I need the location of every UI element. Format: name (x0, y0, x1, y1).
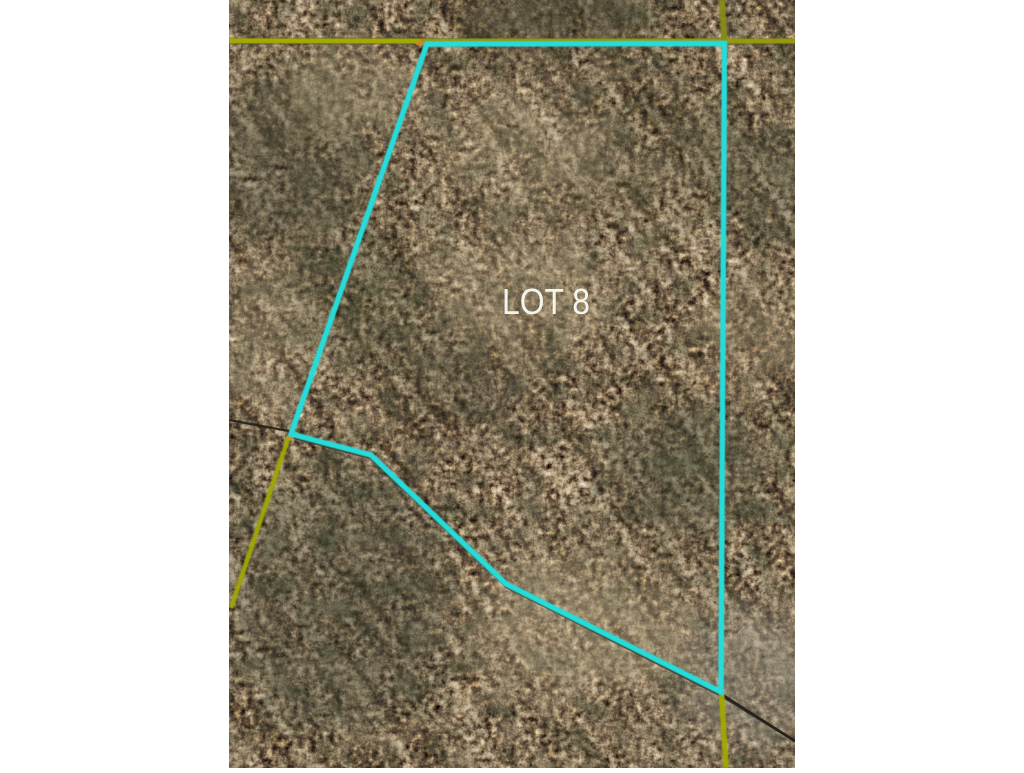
svg-text:LOT 8: LOT 8 (502, 281, 590, 322)
